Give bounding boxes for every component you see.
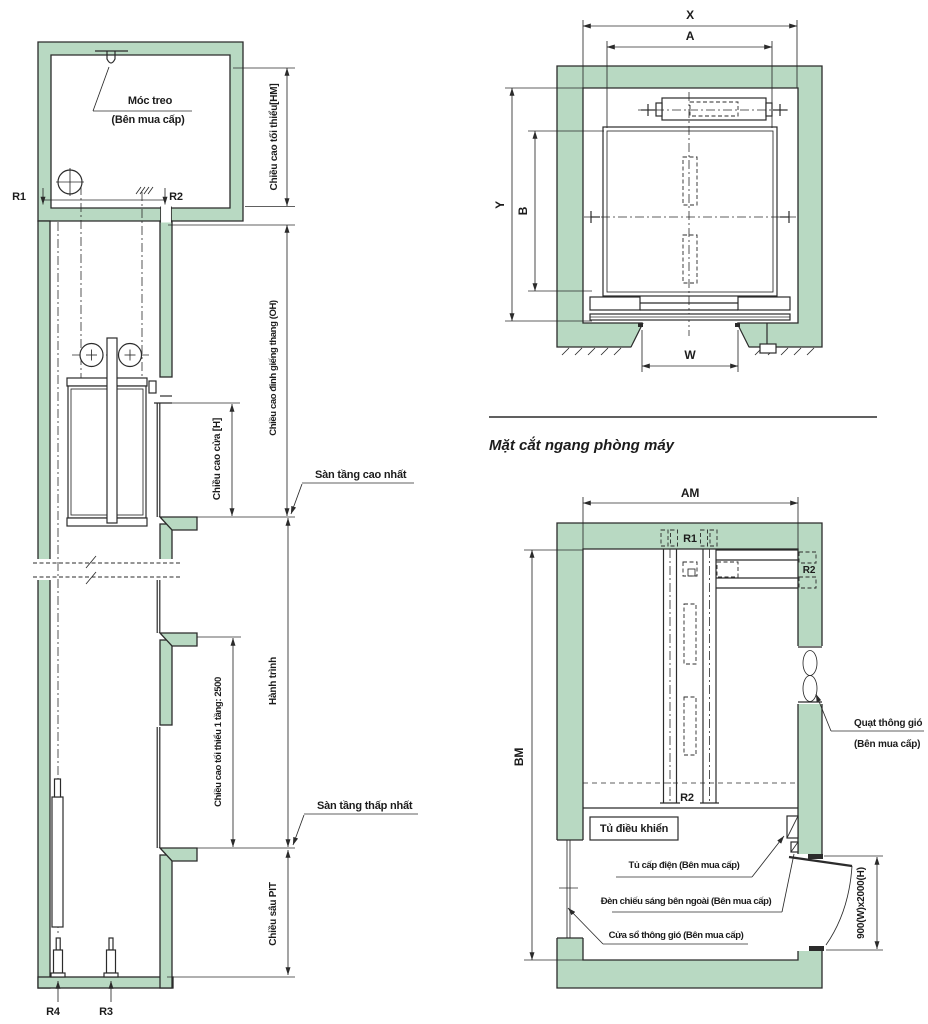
control-panel-label: Tủ điều khiển [600, 823, 669, 835]
mr-door-opening [797, 854, 825, 951]
bottom-floor-label: Sàn tầng thấp nhất [317, 800, 413, 812]
dim-x-label: X [686, 8, 694, 22]
fan-opening [797, 646, 823, 704]
dim-pit-label: Chiều sâu PIT [267, 882, 279, 946]
power-cabinet-label: Tủ cấp điện (Bên mua cấp) [629, 860, 740, 871]
door-drive-left [590, 297, 640, 310]
r1-label: R1 [12, 191, 26, 203]
mr-r1-label: R1 [683, 533, 697, 545]
dim-hm-label: Chiều cao tối thiểu[HM] [268, 83, 280, 190]
mr-r2-top-label: R2 [803, 565, 816, 576]
r2-label: R2 [169, 191, 183, 203]
vent-window-label: Cửa sổ thông gió (Bên mua cấp) [609, 930, 744, 941]
car-sling-post [107, 338, 117, 523]
r3-label: R3 [99, 1006, 113, 1018]
outdoor-light-label: Đèn chiếu sáng bên ngoài (Bên mua cấp) [601, 896, 772, 907]
drawing-canvas: Móc treo (Bên mua cấp) R1 R2 Chiều cao t… [0, 0, 928, 1024]
counterweight-cap [55, 779, 61, 797]
counterweight [52, 797, 63, 927]
door-size-label: 900(W)x2000(H) [856, 867, 867, 939]
hook-label: Móc treo [128, 95, 173, 107]
elevator-technical-drawing: Móc treo (Bên mua cấp) R1 R2 Chiều cao t… [0, 0, 928, 1024]
r4-label: R4 [46, 1006, 61, 1018]
shaft-right-wall-upper [160, 221, 172, 377]
car-plan [603, 127, 777, 296]
dim-oh-label: Chiều cao đỉnh giếng thang (OH) [268, 300, 279, 436]
dim-y-label: Y [493, 201, 507, 209]
top-floor-label: Sàn tầng cao nhất [315, 469, 407, 481]
door-drive-right [738, 297, 790, 310]
dim-travel-label: Hành trình [268, 657, 279, 705]
fan-sub-label: (Bên mua cấp) [854, 738, 920, 750]
dim-a-label: A [686, 29, 695, 43]
door-hanger [149, 381, 156, 393]
machine-floor-slot [161, 207, 172, 223]
traction-machine [662, 98, 766, 120]
dim-b-label: B [516, 206, 530, 215]
dim-door-label: Chiều cao cửa [H] [211, 418, 223, 500]
shaft-right-wall-3 [160, 640, 172, 725]
hoistway-door-opening [631, 322, 749, 348]
dim-floor-label: Chiều cao tối thiểu 1 tầng: 2500 [213, 677, 224, 807]
shaft-right-wall-lower [160, 855, 172, 988]
fan-label: Quạt thông gió [854, 718, 922, 729]
shaft-right-wall-2 [160, 524, 172, 562]
hook-sub-label: (Bên mua cấp) [111, 114, 185, 126]
shaft-left-wall [38, 221, 50, 988]
dim-w-label: W [684, 348, 696, 362]
mr-r2-bottom-label: R2 [680, 792, 694, 804]
dim-am-label: AM [681, 486, 699, 500]
plan-caption: Mặt cắt ngang phòng máy [489, 436, 675, 454]
dim-bm-label: BM [512, 748, 526, 766]
